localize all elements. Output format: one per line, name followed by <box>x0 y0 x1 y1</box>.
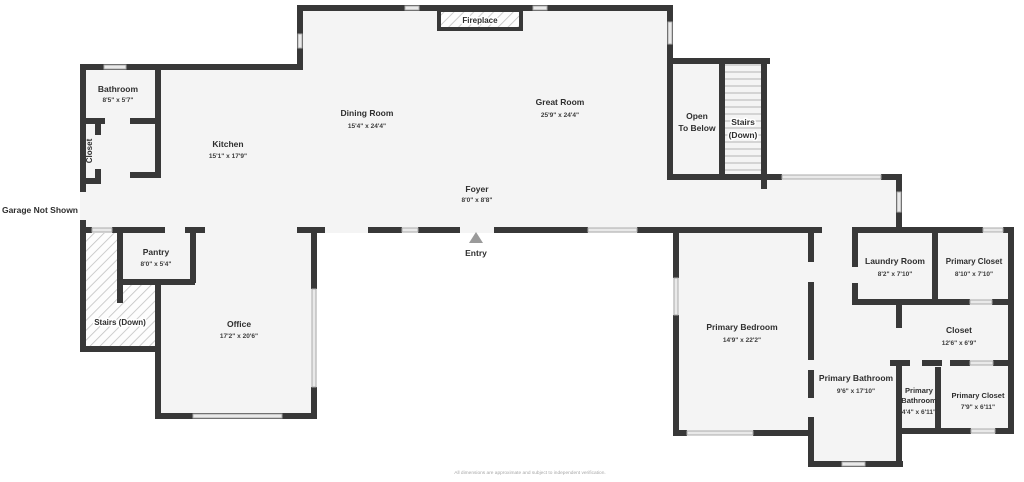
room-label-laundry-room: Laundry Room <box>865 256 925 266</box>
wall-segment <box>130 172 161 178</box>
room-label-primary-bedroom: Primary Bedroom <box>706 322 778 332</box>
window-segment <box>971 429 995 433</box>
room-dims-primary-bathroom: 9'6" x 17'10" <box>837 388 875 395</box>
window-segment <box>687 431 753 435</box>
window-segment <box>312 289 316 387</box>
wall-segment <box>80 64 86 192</box>
wall-segment <box>808 370 814 398</box>
wall-segment <box>117 279 195 285</box>
fireplace-label: Fireplace <box>462 16 498 25</box>
window-segment <box>983 228 1003 232</box>
floor-plan-svg: Bathroom 8'5" x 5'7" Closet Kitchen 15'1… <box>0 0 1024 482</box>
wall-segment <box>673 315 679 436</box>
window-segment <box>104 65 126 69</box>
wall-segment <box>753 430 814 436</box>
window-segment <box>668 22 672 44</box>
window-segment <box>897 192 901 212</box>
room-dims-primary-closet-upper: 8'10" x 7'10" <box>955 271 993 278</box>
wall-segment <box>80 346 160 352</box>
room-dims-great-room: 25'9" x 24'4" <box>541 112 579 119</box>
entry-arrow-icon <box>469 232 483 243</box>
wall-segment <box>190 227 196 283</box>
wall-segment <box>637 227 675 233</box>
wall-segment <box>311 227 317 289</box>
room-label-primary-closet-lower: Primary Closet <box>952 391 1005 400</box>
wall-segment <box>155 283 161 419</box>
window-segment <box>405 6 419 10</box>
window-segment <box>782 175 881 179</box>
room-dims-foyer: 8'0" x 8'8" <box>462 197 493 204</box>
wall-segment <box>852 227 983 233</box>
window-segment <box>193 414 282 418</box>
window-segment <box>402 228 418 232</box>
window-segment <box>674 278 678 315</box>
window-segment <box>588 228 637 232</box>
wall-segment <box>896 303 902 328</box>
wall-segment <box>80 220 86 352</box>
wall-segment <box>667 58 770 64</box>
wall-segment <box>95 118 101 135</box>
stairs-down-lower-label: Stairs (Down) <box>94 318 146 327</box>
wall-segment <box>130 118 161 124</box>
wall-segment <box>852 233 858 267</box>
room-label-suite-closet: Closet <box>946 325 972 335</box>
room-dims-pantry: 8'0" x 5'4" <box>141 261 172 268</box>
room-label-primary-bathroom-small-line1: Primary <box>905 386 934 395</box>
open-to-below-label-line2: To Below <box>678 123 716 133</box>
wall-segment <box>761 58 767 189</box>
wall-segment <box>667 174 767 180</box>
wall-segment <box>767 174 782 180</box>
room-dims-primary-bedroom: 14'9" x 22'2" <box>723 337 761 344</box>
wall-segment <box>1008 227 1014 434</box>
wall-segment <box>950 360 970 366</box>
stairs-down-upper-label-line1: Stairs <box>731 117 755 127</box>
wall-segment <box>808 282 814 360</box>
stairs-down-upper-label-line2: (Down) <box>729 130 758 140</box>
room-label-primary-closet-upper: Primary Closet <box>946 257 1003 266</box>
window-segment <box>970 300 992 304</box>
room-label-primary-bathroom: Primary Bathroom <box>819 373 894 383</box>
room-dims-primary-bathroom-small: 4'4" x 6'11" <box>902 409 936 416</box>
wall-segment <box>675 227 822 233</box>
wall-segment <box>418 227 460 233</box>
room-dims-kitchen: 15'1" x 17'9" <box>209 153 247 160</box>
wall-segment <box>673 430 687 436</box>
room-label-kitchen: Kitchen <box>212 139 243 149</box>
wall-segment <box>852 299 970 305</box>
room-label-office: Office <box>227 319 251 329</box>
wall-segment <box>808 233 814 262</box>
wall-segment <box>185 227 205 233</box>
wall-segment <box>673 233 679 278</box>
window-segment <box>970 361 993 365</box>
floors <box>80 5 1014 467</box>
room-label-dining-room: Dining Room <box>341 108 394 118</box>
wall-segment <box>80 227 92 233</box>
wall-segment <box>932 233 938 305</box>
window-segment <box>533 6 547 10</box>
room-label-great-room: Great Room <box>536 97 585 107</box>
wall-segment <box>896 428 971 434</box>
room-label-primary-bathroom-small-line2: Bathroom <box>901 396 937 405</box>
wall-segment <box>719 58 725 180</box>
entry-label: Entry <box>465 248 487 258</box>
wall-segment <box>494 227 588 233</box>
room-label-foyer: Foyer <box>465 184 489 194</box>
wall-segment <box>297 227 325 233</box>
room-dims-suite-closet: 12'6" x 6'9" <box>942 340 977 347</box>
wall-segment <box>112 227 165 233</box>
room-dims-laundry-room: 8'2" x 7'10" <box>878 271 913 278</box>
room-dims-primary-closet-lower: 7'9" x 6'11" <box>961 404 995 411</box>
wall-segment <box>922 360 942 366</box>
window-segment <box>92 228 112 232</box>
room-label-hall-closet: Closet <box>85 138 94 163</box>
room-dims-dining-room: 15'4" x 24'4" <box>348 123 386 130</box>
floor-plan: Bathroom 8'5" x 5'7" Closet Kitchen 15'1… <box>0 0 1024 482</box>
wall-segment <box>117 227 123 303</box>
window-segment <box>298 34 302 48</box>
room-label-pantry: Pantry <box>143 247 170 257</box>
wall-segment <box>368 227 402 233</box>
window-segment <box>842 462 865 466</box>
wall-segment <box>890 360 910 366</box>
room-dims-office: 17'2" x 20'6" <box>220 333 258 340</box>
disclaimer-text: All dimensions are approximate and subje… <box>454 470 605 476</box>
wall-segment <box>808 417 814 467</box>
room-dims-bathroom: 8'5" x 5'7" <box>103 97 134 104</box>
wall-segment <box>667 58 673 180</box>
garage-note: Garage Not Shown <box>2 205 78 215</box>
room-label-bathroom: Bathroom <box>98 84 139 94</box>
open-to-below-label-line1: Open <box>686 111 708 121</box>
